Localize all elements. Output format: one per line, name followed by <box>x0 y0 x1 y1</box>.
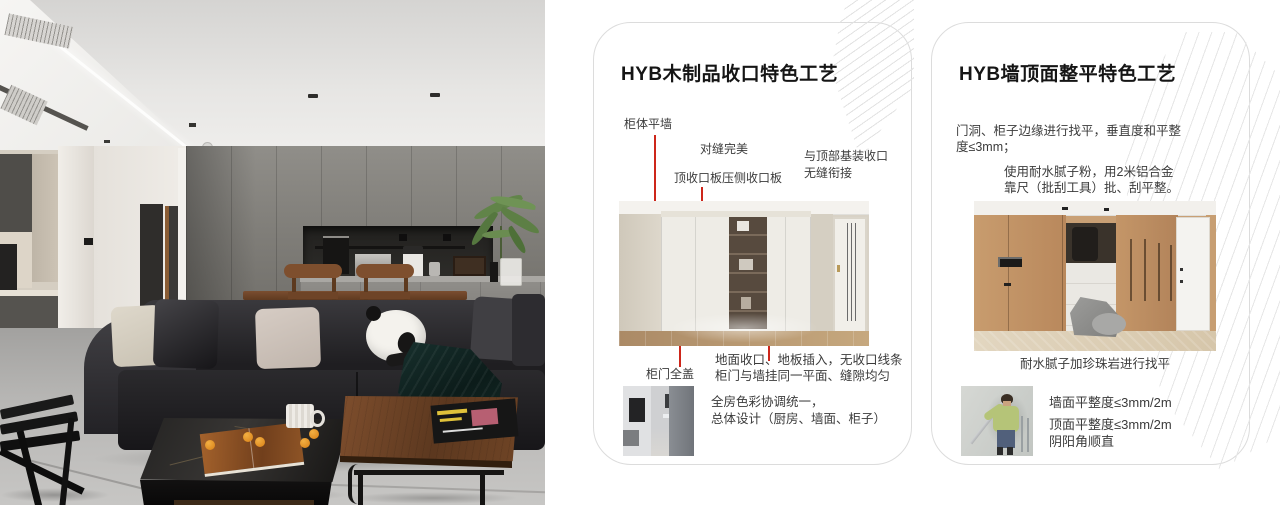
handle-groove <box>1170 245 1172 301</box>
bean-bag-pouf <box>1092 313 1126 335</box>
dining-chair-seat <box>288 292 338 299</box>
bottle <box>490 262 498 282</box>
pillow-black <box>153 299 219 369</box>
spec-wall-flatness: 墙面平整度≤3mm/2m <box>1049 392 1172 411</box>
magazine-title-text <box>437 409 467 416</box>
shelf-decor <box>737 221 749 231</box>
wall-socket <box>399 234 407 241</box>
living-room-photo <box>0 0 545 505</box>
door-hinge-dot <box>1180 280 1183 283</box>
orange-fruit <box>300 438 310 448</box>
para-leveling-line1: 门洞、柜子边缘进行找平，垂直度和平整 <box>956 123 1181 139</box>
recessed-light <box>430 93 440 97</box>
render-left-wall <box>619 214 663 333</box>
handle-groove <box>1144 239 1146 301</box>
magazine <box>431 398 519 443</box>
interior-door <box>833 217 867 333</box>
dining-chair-seat <box>360 292 410 299</box>
light-switch <box>84 238 93 245</box>
door-stripe <box>847 223 848 321</box>
white-door <box>1176 217 1210 331</box>
mug-handle <box>310 410 325 427</box>
pillow-dark <box>512 294 545 366</box>
magazine-text-line <box>443 427 483 432</box>
door-handle <box>837 265 840 272</box>
para-putty-line2: 靠尺（批刮工具）批、刮平整。 <box>1004 180 1179 196</box>
coffee-mug <box>286 404 314 428</box>
recessed-light <box>308 94 318 98</box>
door-hinge-dot <box>1180 268 1183 271</box>
orange-fruit <box>205 440 215 450</box>
wall-socket <box>443 234 451 241</box>
kitchen-thumb-image <box>623 386 694 456</box>
summary-overall-design: 总体设计（厨房、墙面、柜子） <box>711 411 886 427</box>
wood-door-wall <box>974 215 1066 331</box>
callout-line <box>679 346 681 367</box>
door-stripe <box>855 223 856 321</box>
ceiling-spotlight <box>1062 207 1068 210</box>
table-metal-leg <box>480 475 485 505</box>
thumb-sofa <box>623 430 639 446</box>
ladder-rail <box>1027 418 1029 452</box>
hanging-clothes <box>1072 227 1098 261</box>
door-stripe <box>851 223 852 321</box>
dining-chair-back <box>284 264 342 278</box>
potted-plant <box>462 196 545 296</box>
pillow-blush <box>255 307 321 369</box>
orange-fruit <box>243 432 253 442</box>
worker-shoe <box>997 447 1003 455</box>
worker-shirt <box>993 406 1019 432</box>
orange-fruit <box>309 429 319 439</box>
plant-vase <box>500 258 522 286</box>
intercom-panel <box>998 257 1022 267</box>
wardrobe-render-image <box>619 201 869 346</box>
room-ceiling <box>974 201 1216 216</box>
door-handle <box>1004 283 1011 286</box>
door-seam <box>1008 215 1009 331</box>
page: HYB木制品收口特色工艺 柜体平墙 对缝完美 顶收口板压侧收口板 与顶部基装收口… <box>0 0 1280 505</box>
para-putty-line1: 使用耐水腻子粉，用2米铝合金 <box>1004 164 1173 180</box>
recessed-light <box>189 123 196 127</box>
thumb-tv <box>629 398 645 422</box>
card-wood-finish-craft: HYB木制品收口特色工艺 柜体平墙 对缝完美 顶收口板压侧收口板 与顶部基装收口… <box>593 22 912 465</box>
note-floor-closing: 地面收口、地板插入，无收口线条 <box>715 352 903 368</box>
spec-corners-straight: 阴阳角顺直 <box>1049 431 1114 450</box>
kitchen-tall-cabinet <box>32 154 60 282</box>
orange-fruit <box>255 437 265 447</box>
kettle <box>429 262 440 276</box>
recessed-light <box>104 140 110 143</box>
callout-full-overlay-doors: 柜门全盖 <box>646 367 694 382</box>
dining-table <box>243 291 467 300</box>
wood-coffee-table <box>340 392 518 505</box>
wardrobe-panels <box>1116 215 1178 335</box>
shelf-decor <box>739 259 753 270</box>
door-seam <box>1062 215 1063 331</box>
closet-opening <box>1066 223 1116 263</box>
magazine-title-text <box>440 417 462 422</box>
image-caption: 耐水腻子加珍珠岩进行找平 <box>974 356 1216 372</box>
handle-groove <box>1130 239 1132 301</box>
coffee-machine <box>0 244 17 290</box>
card-title: HYB木制品收口特色工艺 <box>621 59 838 86</box>
stone-coffee-table <box>138 416 354 505</box>
kitchen-upper-cabinet <box>0 154 34 232</box>
ceiling-spotlight <box>1104 208 1109 211</box>
magazine-cover-image <box>471 408 498 426</box>
summary-color-harmony: 全房色彩协调统一， <box>711 394 824 410</box>
panda-ear <box>366 306 381 321</box>
handle-groove <box>1158 243 1160 301</box>
worker-thumb-image <box>961 386 1033 456</box>
ladder-rail <box>1021 416 1023 452</box>
table-wood-plinth <box>174 500 314 505</box>
callout-cabinet-flush-wall: 柜体平墙 <box>624 117 672 132</box>
worker-pants <box>997 430 1015 448</box>
callout-ceiling-joint-line1: 与顶部基装收口 <box>804 149 888 164</box>
wood-room-image <box>974 201 1216 351</box>
card-wall-leveling-craft: HYB墙顶面整平特色工艺 门洞、柜子边缘进行找平，垂直度和平整 度≤3mm； 使… <box>931 22 1250 465</box>
note-flush-with-wall: 柜门与墙挂同一平面、缝隙均匀 <box>715 368 890 384</box>
dining-chair-back <box>356 264 414 278</box>
callout-top-closing-panel: 顶收口板压侧收口板 <box>674 171 782 186</box>
chair-shadow <box>0 488 110 502</box>
thumb-gray-cabinet <box>669 386 694 456</box>
para-leveling-line2: 度≤3mm； <box>956 139 1016 155</box>
table-metal-side <box>348 464 364 504</box>
callout-perfect-seam: 对缝完美 <box>700 142 748 157</box>
floor-glow <box>669 313 819 343</box>
card-title: HYB墙顶面整平特色工艺 <box>959 59 1176 86</box>
callout-ceiling-joint-line2: 无缝衔接 <box>804 166 852 181</box>
worker-shoe <box>1007 447 1013 455</box>
shelf-decor <box>741 297 751 309</box>
